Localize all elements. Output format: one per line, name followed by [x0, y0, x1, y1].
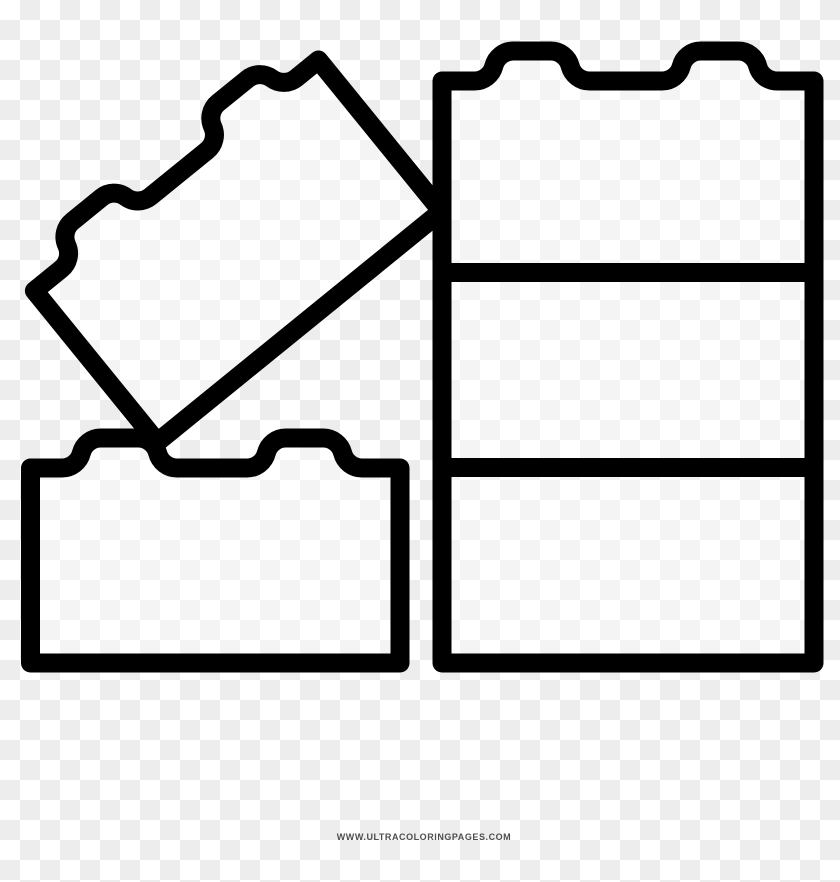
svg-text:WWW.ULTRACOLORINGPAGES.COM: WWW.ULTRACOLORINGPAGES.COM: [337, 832, 511, 842]
